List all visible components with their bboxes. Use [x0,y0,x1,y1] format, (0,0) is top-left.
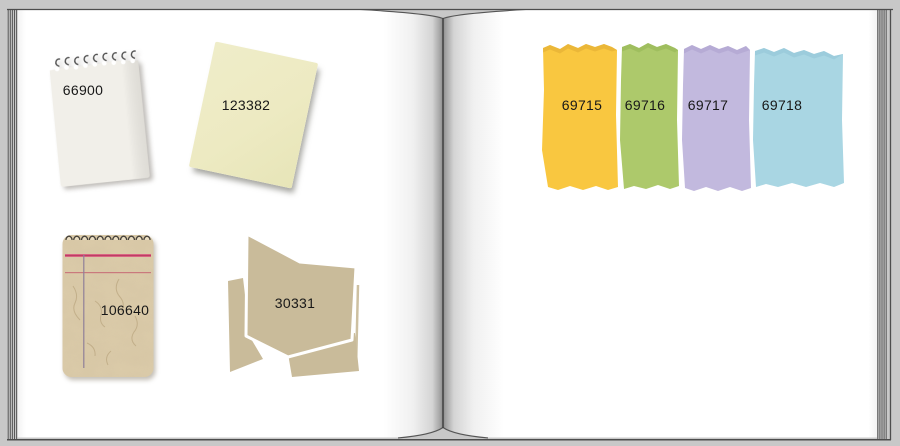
folded-paper-number: 30331 [275,295,315,311]
strip-yellow-number: 69715 [562,97,602,113]
white-spiral-notepad[interactable] [46,47,152,189]
torn-strip-lavender[interactable] [682,45,751,191]
kraft-notepad-number: 106640 [101,302,150,318]
white-notepad-number: 66900 [63,82,103,98]
spiral-loops-icon [66,236,150,240]
notepad-shading [49,59,150,187]
strip-green-number: 69716 [625,97,665,113]
rule-line-core [65,255,151,256]
torn-strip-blue[interactable] [753,48,844,187]
rule-line-thin [65,272,151,273]
strip-body [542,44,618,190]
strip-blue-number: 69718 [762,97,802,113]
scrapbook-stage: 66900 123382 106640 30331 69715 69716 69… [0,0,900,446]
torn-strip-yellow[interactable] [542,44,618,190]
torn-strip-row [538,40,848,195]
torn-strip-green[interactable] [620,43,679,189]
strip-body [620,43,679,189]
strip-lavender-number: 69717 [688,97,728,113]
strip-body [753,48,844,187]
strip-body [682,45,751,191]
margin-line [83,255,85,368]
yellow-note-number: 123382 [222,97,271,113]
